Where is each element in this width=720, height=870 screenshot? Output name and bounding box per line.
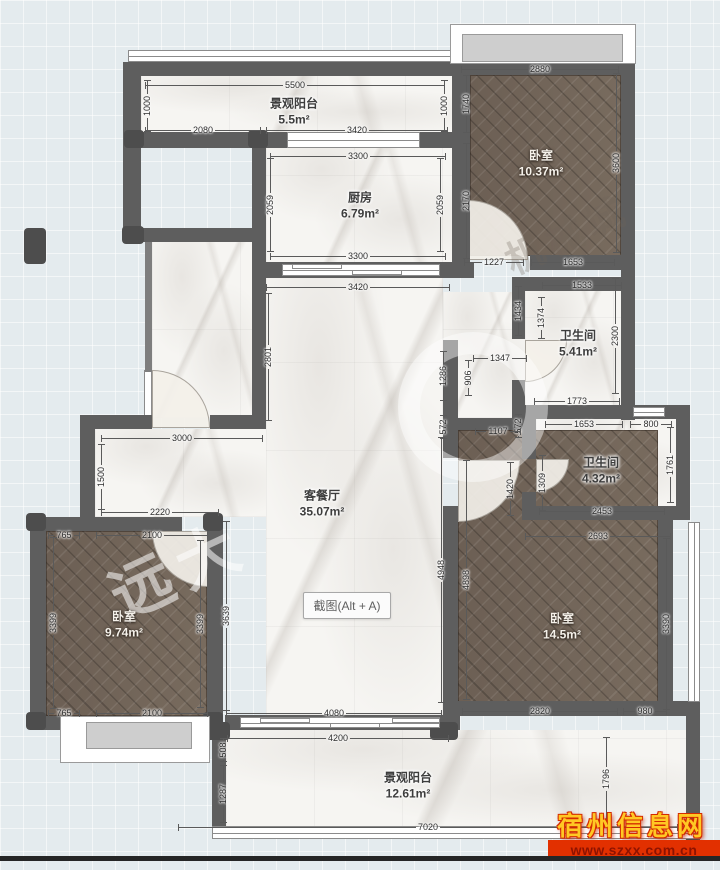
- room-label-kitchen: 厨房 6.79m²: [341, 190, 379, 221]
- dimension-label: 1000: [143, 80, 151, 132]
- dimension-label: 5500: [145, 81, 445, 89]
- bottom-border: [0, 856, 720, 861]
- dimension-label: 1309: [538, 455, 546, 511]
- balcony-top-rail: [128, 50, 454, 62]
- bay-window-fill: [462, 34, 623, 62]
- dimension-label: 1740: [462, 75, 470, 133]
- dimension-label: 2100: [96, 709, 208, 717]
- dimension-label: 2801: [264, 293, 272, 421]
- wall: [30, 517, 182, 531]
- dimension-label: 1107: [475, 427, 521, 435]
- dimension-label: 2220: [101, 508, 219, 516]
- wall: [522, 419, 536, 459]
- dimension-label: 3639: [222, 521, 230, 711]
- wall: [443, 506, 458, 715]
- room-label-balcony-top: 景观阳台 5.5m²: [270, 96, 318, 127]
- dimension-label: 2080: [145, 126, 261, 134]
- room-label-living-dining: 客餐厅 35.07m²: [300, 488, 345, 519]
- dimension-label: 3600: [612, 73, 620, 253]
- dimension-label: 4948: [437, 437, 445, 703]
- dimension-label: 1653: [531, 258, 615, 266]
- room-label-bathroom-1: 卫生间 5.41m²: [559, 328, 597, 359]
- dimension-label: 2693: [525, 532, 671, 540]
- dimension-label: 1773: [534, 397, 620, 405]
- dimension-label: 2170: [462, 143, 470, 259]
- wall: [123, 62, 455, 76]
- dimension-label: 1500: [97, 444, 105, 510]
- dimension-label: 3000: [101, 434, 263, 442]
- dimension-label: 4898: [462, 460, 470, 700]
- wall: [123, 228, 266, 242]
- room-label-bedroom-top-right: 卧室 10.37m²: [519, 148, 564, 179]
- dimension-label: 2880: [461, 65, 619, 73]
- room-floor-living: [266, 278, 443, 715]
- dimension-label: 1227: [464, 258, 524, 266]
- dimension-label: 2100: [96, 531, 208, 539]
- dimension-label: 1347: [473, 354, 527, 362]
- dimension-label: 2059: [266, 158, 274, 252]
- dimension-label: 3300: [270, 252, 446, 260]
- dimension-label: 508: [219, 738, 227, 762]
- dimension-label: 765: [48, 709, 80, 717]
- wall: [123, 62, 141, 242]
- bay-window-fill: [86, 722, 192, 749]
- room-label-bathroom-2: 卫生间 4.32m²: [582, 455, 620, 486]
- room-label-bedroom-bottom-right: 卧室 14.5m²: [543, 611, 581, 642]
- dimension-label: 906: [464, 360, 472, 396]
- dimension-label: 1420: [506, 462, 514, 516]
- room-label-balcony-bottom: 景观阳台 12.61m²: [384, 770, 432, 801]
- sliding-panel: [330, 723, 380, 728]
- sliding-panel: [392, 718, 440, 723]
- wall-post: [24, 228, 46, 264]
- dimension-label: 980: [623, 707, 667, 715]
- sliding-panel: [292, 264, 342, 269]
- dimension-label: 4080: [226, 709, 442, 717]
- dimension-label: 3390: [662, 538, 670, 710]
- dimension-label: 572: [439, 415, 447, 439]
- wall: [30, 517, 46, 730]
- dimension-label: 2820: [462, 707, 618, 715]
- site-watermark-name: 宿州信息网: [544, 806, 720, 843]
- wall: [621, 62, 635, 277]
- sliding-panel: [352, 270, 402, 275]
- dimension-label: 2453: [539, 507, 665, 515]
- wall-post: [26, 513, 46, 531]
- wall-post: [26, 712, 46, 730]
- dimension-label: 1000: [440, 80, 448, 132]
- dimension-label: 3399: [196, 540, 204, 708]
- dimension-label: 1653: [545, 420, 623, 428]
- wall: [621, 277, 635, 420]
- dimension-label: 1287: [219, 765, 227, 823]
- bathroom-2-window: [633, 407, 665, 417]
- wall: [210, 415, 266, 429]
- dimension-label: 4200: [227, 734, 449, 742]
- wall-post: [124, 130, 144, 148]
- dimension-label: 2059: [436, 158, 444, 252]
- dimension-label: 3399: [49, 537, 57, 709]
- wall: [676, 405, 690, 520]
- wall: [80, 415, 95, 531]
- dimension-label: 3300: [270, 152, 446, 160]
- dimension-label: 2300: [611, 278, 619, 394]
- floor-plan-canvas: 远大 机械城 550010002080342010001740288021703…: [0, 0, 720, 870]
- wall-post: [122, 226, 144, 244]
- sliding-panel: [260, 718, 310, 723]
- dimension-label: 1533: [542, 281, 622, 289]
- wall: [145, 242, 152, 372]
- screenshot-button[interactable]: 截图(Alt + A): [303, 592, 391, 619]
- dimension-label: 1434: [514, 286, 522, 336]
- side-rail: [688, 522, 700, 702]
- dimension-label: 3420: [266, 283, 450, 291]
- dimension-label: 1286: [439, 351, 447, 401]
- room-label-bedroom-bottom-left: 卧室 9.74m²: [105, 609, 143, 640]
- dimension-label: 1374: [537, 297, 545, 339]
- dimension-label: 1761: [666, 427, 674, 503]
